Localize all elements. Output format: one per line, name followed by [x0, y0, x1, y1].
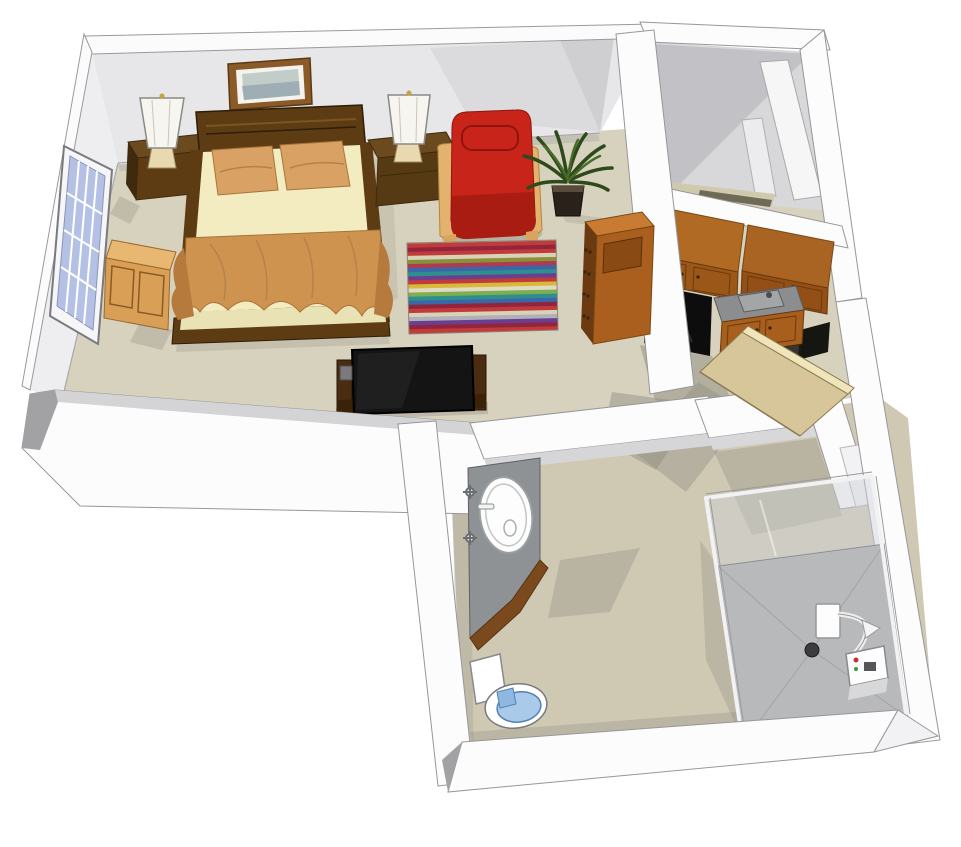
floorplan-svg	[0, 0, 961, 847]
pillow-right	[280, 141, 350, 190]
floorplan-3d-render	[0, 0, 961, 847]
shower-hot-dot	[854, 658, 859, 663]
vanity-faucet	[478, 504, 494, 509]
lamp-left-finial	[160, 94, 165, 99]
bench-front	[104, 258, 170, 330]
shower-display	[864, 662, 876, 671]
striped-rug	[403, 236, 563, 338]
lamp-left-shade	[140, 98, 184, 148]
pillow-left	[212, 146, 278, 195]
lower-cabinet-handle-2	[768, 326, 771, 329]
lamp-right-shade	[388, 95, 430, 144]
plant-pot-rim	[552, 186, 584, 192]
shower-cold-dot	[854, 667, 858, 671]
toilet-lid-hinge	[497, 688, 516, 708]
shower-drain	[805, 643, 819, 657]
bookshelf	[581, 212, 654, 344]
rug-stripes	[403, 236, 563, 338]
lamp-left-base	[148, 146, 176, 168]
window-bench	[104, 240, 176, 330]
kitchen-faucet	[766, 292, 772, 298]
lamp-right-base	[394, 142, 422, 162]
tv-on-stand	[337, 346, 486, 414]
chair-seat-front	[451, 192, 536, 239]
shower-mount-plate	[816, 604, 840, 638]
double-bed	[171, 105, 393, 344]
chair-headrest	[462, 126, 518, 150]
red-armchair	[438, 110, 542, 248]
lamp-right-finial	[407, 91, 412, 96]
framed-picture	[228, 58, 312, 110]
tv-speaker-box	[340, 366, 352, 380]
